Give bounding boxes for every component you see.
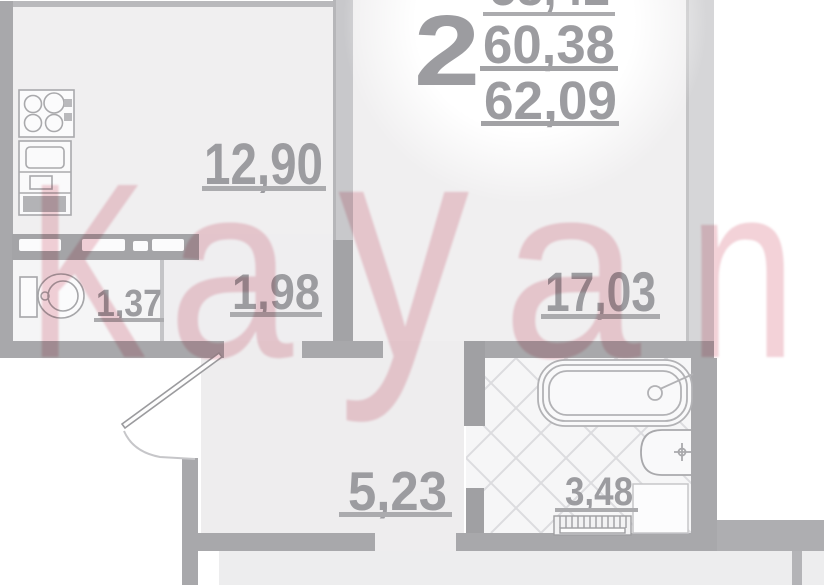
svg-text:K: K xyxy=(27,132,147,411)
svg-text:a: a xyxy=(502,131,642,410)
svg-text:3,48: 3,48 xyxy=(565,470,633,514)
svg-text:a: a xyxy=(168,132,294,411)
svg-text:n: n xyxy=(688,131,796,411)
svg-text:y: y xyxy=(338,75,469,425)
